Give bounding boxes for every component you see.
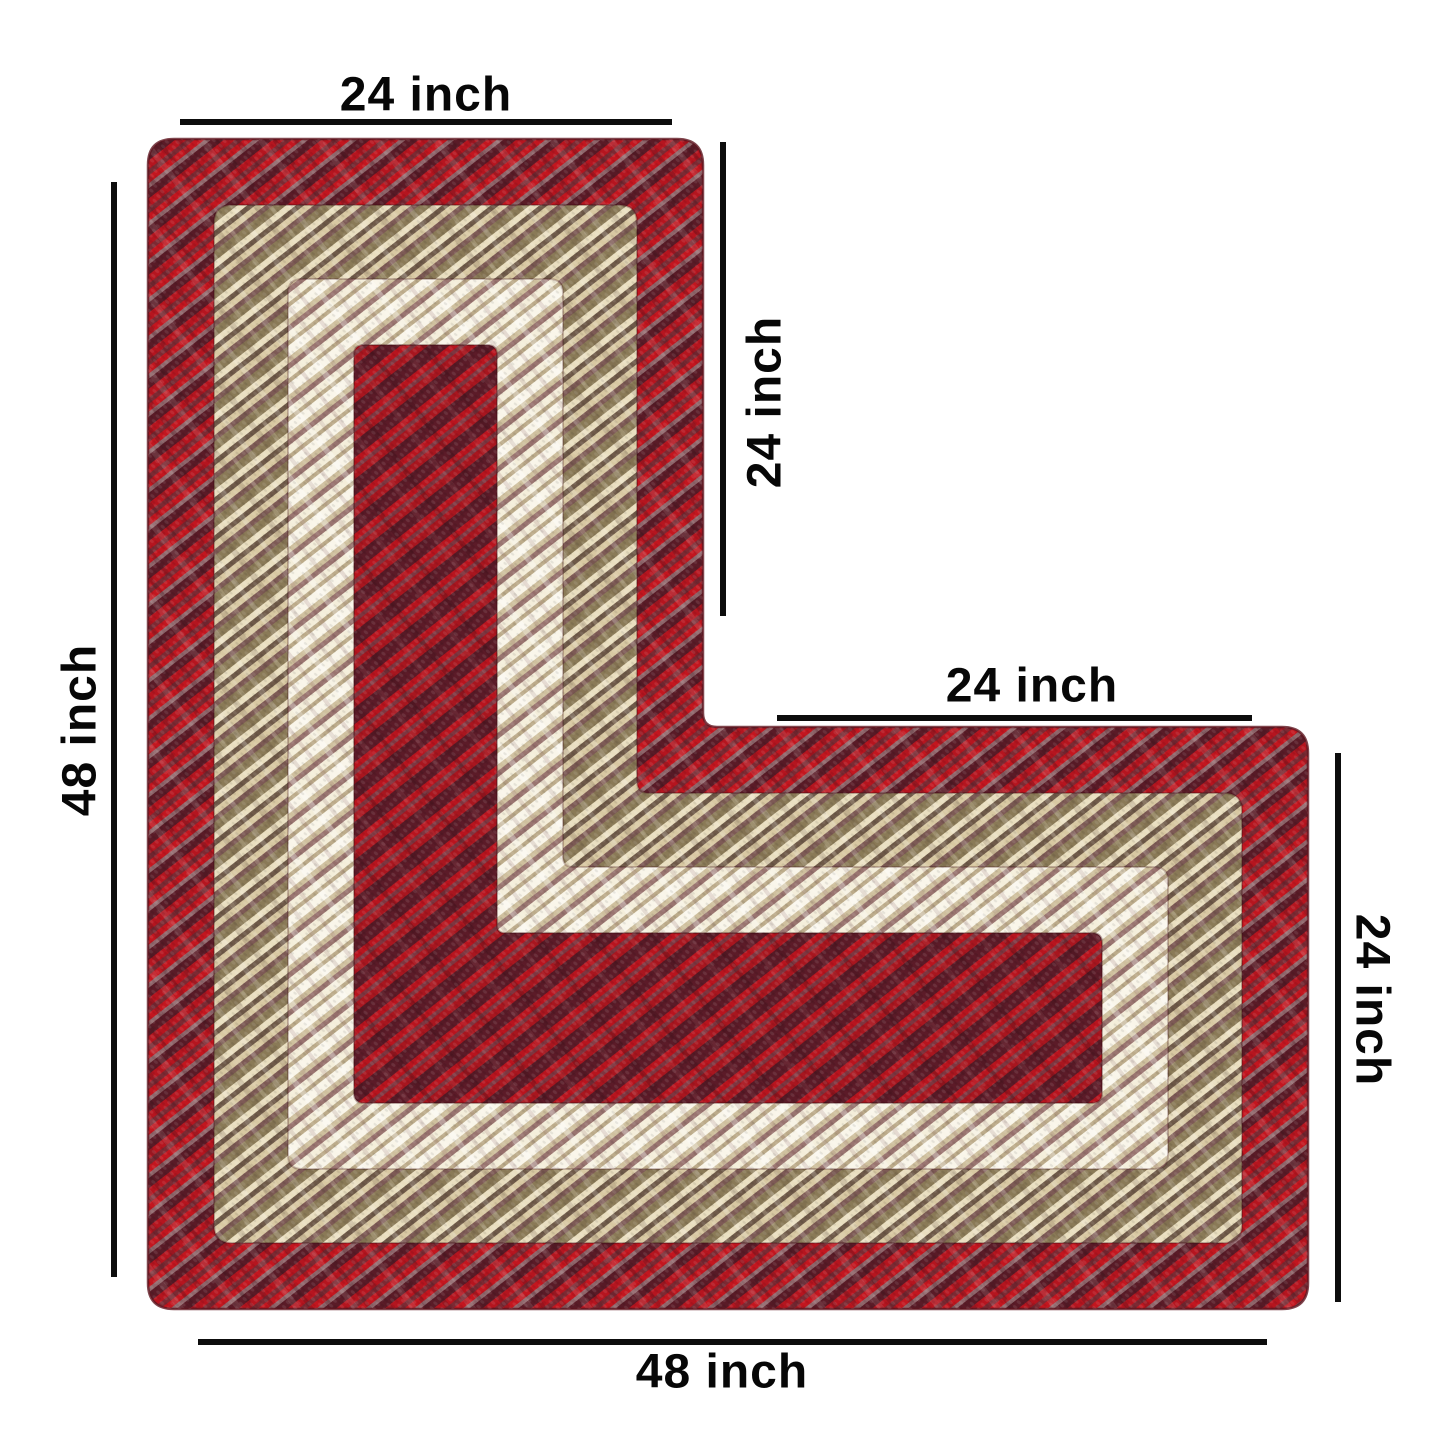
dimension-label-left-height: 48 inch [53,644,108,816]
dimension-label-lower-right-height: 24 inch [1345,914,1400,1086]
dimension-label-arm-top-width: 24 inch [946,659,1118,714]
dimension-label-bottom-width: 48 inch [636,1345,808,1400]
dimension-line-lower-right-height [1335,753,1341,1302]
dimension-line-upper-right-height [720,142,726,616]
product-dimension-image: 24 inch 24 inch 24 inch 24 inch 48 inch … [0,0,1445,1445]
rug-texture-overlay [148,139,1308,1309]
dimension-line-arm-top-width [777,715,1252,721]
dimension-label-top-width: 24 inch [340,68,512,123]
dimension-line-left-height [111,182,117,1277]
dimension-label-upper-right-height: 24 inch [738,316,793,488]
